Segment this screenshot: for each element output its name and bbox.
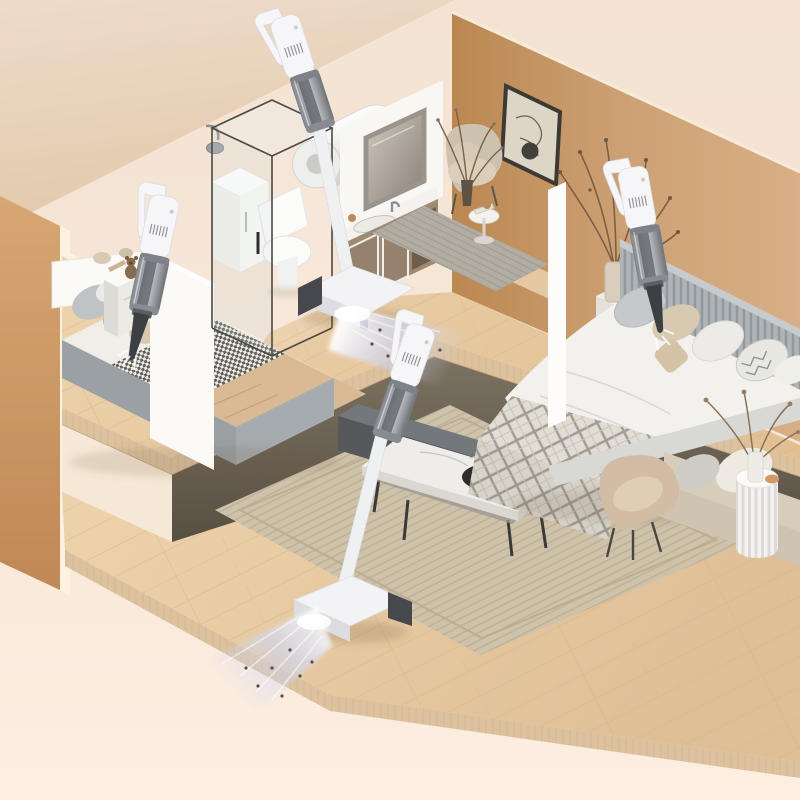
- isometric-home-cutaway: Isometric cutaway of a two-story apartme…: [0, 0, 800, 800]
- nook-sphere: [483, 201, 491, 209]
- exterior-wall-caramel: [0, 196, 60, 590]
- peach-bowl: [765, 475, 779, 484]
- vanity-decor: [348, 214, 356, 222]
- render-canvas: Isometric cutaway of a two-story apartme…: [0, 0, 800, 800]
- headboard-cushion-1: [93, 252, 111, 264]
- right-plant-vase: [605, 262, 622, 302]
- right-partition-wall: [548, 182, 566, 428]
